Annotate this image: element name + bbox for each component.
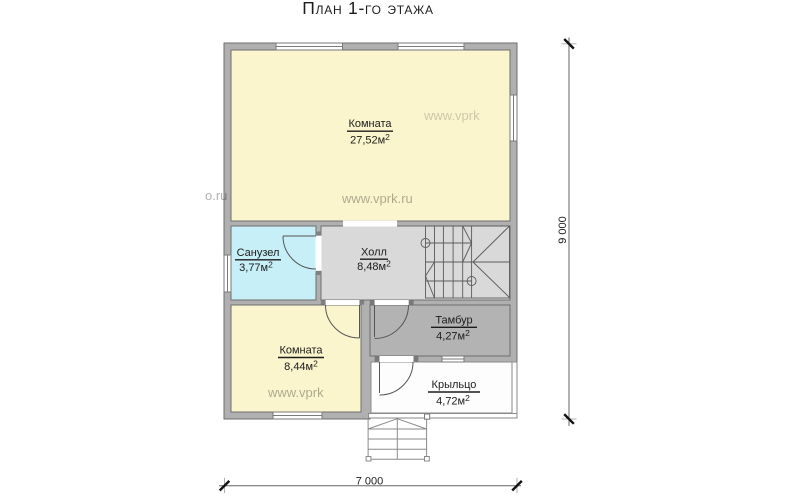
svg-text:4,72м2: 4,72м2: [436, 393, 470, 408]
svg-text:www.vprk: www.vprk: [423, 108, 480, 123]
svg-text:7 000: 7 000: [356, 475, 384, 487]
svg-text:27,52м2: 27,52м2: [350, 132, 390, 147]
svg-text:www.vprk: www.vprk: [267, 385, 324, 400]
svg-text:Санузел: Санузел: [237, 247, 280, 259]
svg-text:9 000: 9 000: [557, 216, 569, 244]
svg-text:3,77м2: 3,77м2: [239, 260, 273, 275]
svg-text:Комната: Комната: [348, 118, 392, 130]
svg-text:Крыльцо: Крыльцо: [432, 379, 477, 391]
svg-text:8,48м2: 8,48м2: [357, 259, 391, 274]
svg-text:o.ru: o.ru: [205, 188, 227, 203]
svg-text:Холл: Холл: [361, 247, 387, 259]
svg-text:Комната: Комната: [279, 345, 323, 357]
svg-text:8,44м2: 8,44м2: [284, 359, 318, 374]
svg-text:Тамбур: Тамбур: [435, 314, 472, 326]
svg-text:4,27м2: 4,27м2: [436, 328, 470, 343]
svg-text:www.vprk.ru: www.vprk.ru: [341, 191, 413, 206]
svg-text:План 1-го этажа: План 1-го этажа: [302, 0, 433, 18]
